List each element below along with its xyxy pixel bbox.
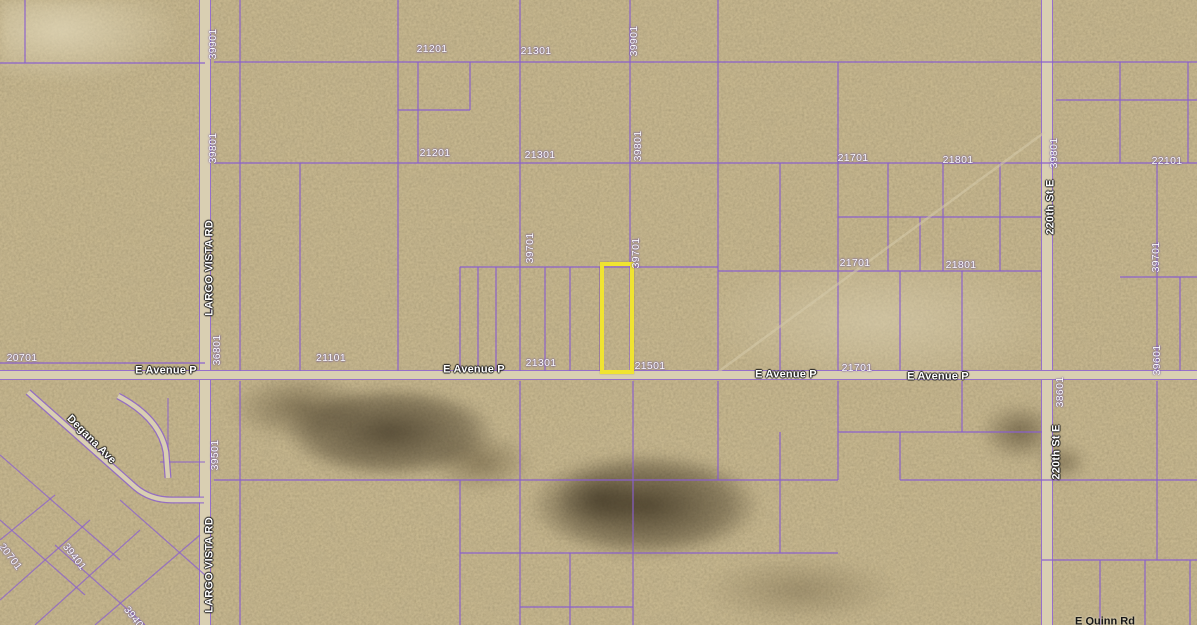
parcel-number-label: 22101 — [1152, 156, 1183, 167]
parcel-number-label: 21201 — [417, 44, 448, 55]
parcel-number-label: 39801 — [208, 133, 219, 164]
map-labels: 2120121301212012130121701218012210121701… — [0, 0, 1197, 625]
parcel-number-label: 39701 — [631, 238, 642, 269]
parcel-number-label: 20701 — [0, 542, 24, 573]
parcel-number-label: 21201 — [420, 148, 451, 159]
parcel-number-label: 39501 — [210, 440, 221, 471]
road-label: E Avenue P — [443, 365, 505, 376]
parcel-number-label: 39601 — [1152, 345, 1163, 376]
parcel-number-label: 21701 — [842, 363, 873, 374]
road-label: 220th St E — [1052, 424, 1063, 479]
parcel-number-label: 21101 — [316, 353, 346, 364]
parcel-number-label: 39801 — [633, 131, 644, 162]
parcel-number-label: 21701 — [840, 258, 871, 269]
parcel-number-label: 21301 — [526, 358, 557, 369]
parcel-number-label: 39401 — [121, 605, 148, 625]
parcel-number-label: 39901 — [629, 26, 640, 57]
parcel-number-label: 39901 — [208, 29, 219, 60]
parcel-number-label: 21801 — [943, 155, 974, 166]
parcel-number-label: 21701 — [838, 153, 869, 164]
road-label: E Avenue P — [135, 366, 197, 377]
road-label-dark: E Quinn Rd — [1075, 617, 1135, 625]
parcel-number-label: 38601 — [1055, 377, 1066, 408]
parcel-number-label: 39801 — [1049, 138, 1060, 169]
road-label: E Avenue P — [755, 370, 817, 381]
parcel-number-label: 39701 — [1151, 242, 1162, 273]
parcel-number-label: 21301 — [521, 46, 552, 57]
road-label: LARGO VISTA RD — [205, 517, 216, 613]
road-label: Degana Ave — [64, 413, 117, 466]
parcel-number-label: 21501 — [635, 361, 666, 372]
parcel-number-label: 36801 — [212, 335, 223, 366]
road-label: LARGO VISTA RD — [205, 220, 216, 316]
parcel-number-label: 39401 — [60, 542, 87, 573]
parcel-number-label: 20701 — [7, 353, 38, 364]
road-label: 220th St E — [1046, 179, 1057, 234]
parcel-number-label: 21301 — [525, 150, 556, 161]
road-label: E Avenue P — [907, 372, 969, 383]
map-canvas[interactable]: 2120121301212012130121701218012210121701… — [0, 0, 1197, 625]
parcel-number-label: 21801 — [946, 260, 977, 271]
parcel-number-label: 39701 — [525, 233, 536, 264]
